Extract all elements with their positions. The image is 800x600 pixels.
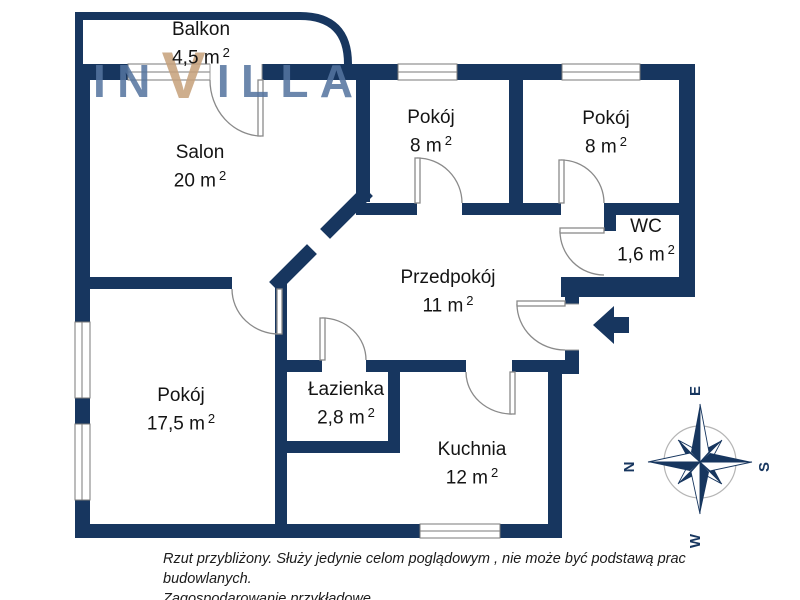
room-label-wc: WC 1,6 m2 xyxy=(617,214,675,268)
window-room3-lower xyxy=(75,424,90,500)
door-entrance xyxy=(517,301,565,350)
wall-kitchen-right xyxy=(548,360,562,538)
wall-salon-room3 xyxy=(75,277,232,289)
wall-wc-left xyxy=(604,215,616,231)
room-label-balkon: Balkon 4,5 m2 xyxy=(172,17,230,71)
compass-cardinal-points xyxy=(648,404,752,514)
window-room3-upper xyxy=(75,322,90,398)
disclaimer-line-1: Rzut przybliżony. Służy jedynie celom po… xyxy=(163,549,763,589)
wall-bath-bottom xyxy=(275,441,400,453)
room-name: Łazienka xyxy=(308,377,384,403)
room-name: Salon xyxy=(174,140,226,166)
room-name: Pokój xyxy=(582,106,630,132)
window-kitchen xyxy=(420,524,500,538)
wall-room2-hall xyxy=(523,203,561,215)
wall-diagonal-lower xyxy=(279,254,307,282)
door-room1 xyxy=(415,158,462,203)
room-name: Kuchnia xyxy=(438,437,507,463)
wall-right-upper xyxy=(679,64,695,297)
door-wc xyxy=(560,228,604,275)
compass-label-e: E xyxy=(687,386,704,396)
room-label-przedpokoj: Przedpokój 11 m2 xyxy=(400,265,495,319)
wall-wc-bottom xyxy=(561,277,695,297)
compass-rose-icon: E N S W xyxy=(621,386,773,548)
logo-letter: L xyxy=(241,54,269,108)
disclaimer-line-2: Zagospodarowanie przykładowe. xyxy=(163,589,763,600)
compass-label-n: N xyxy=(621,462,638,473)
entrance-arrow-icon xyxy=(593,306,629,344)
compass-label-w: W xyxy=(687,533,704,548)
wall-kitchen-top-b xyxy=(512,360,548,372)
door-bathroom xyxy=(320,318,366,360)
compass-label-s: S xyxy=(756,462,773,472)
room-label-lazienka: Łazienka 2,8 m2 xyxy=(308,377,384,431)
room-name: Balkon xyxy=(172,17,230,43)
door-room3 xyxy=(232,289,282,334)
room-label-pokoj-3: Pokój 17,5 m2 xyxy=(147,383,215,437)
door-kitchen xyxy=(466,372,515,414)
window-room2 xyxy=(562,64,640,80)
room-name: Przedpokój xyxy=(400,265,495,291)
door-room2 xyxy=(559,160,604,203)
disclaimer-text: Rzut przybliżony. Służy jedynie celom po… xyxy=(163,549,763,600)
logo-letter: I xyxy=(93,54,106,108)
wall-wc-top xyxy=(604,203,679,215)
room-label-kuchnia: Kuchnia 12 m2 xyxy=(438,437,507,491)
wall-room1-hall-b xyxy=(462,203,509,215)
wall-room1-hall-a xyxy=(356,203,417,215)
room-name: Pokój xyxy=(147,383,215,409)
floorplan-canvas: E N S W I N V I L L A Balkon 4,5 m2 Salo… xyxy=(0,0,800,600)
wall-entry-top-jamb xyxy=(565,288,579,304)
logo-letter: A xyxy=(320,54,353,108)
wall-bath-top-a xyxy=(287,360,322,372)
logo-letter: N xyxy=(117,54,150,108)
wall-room1-room2 xyxy=(509,80,523,215)
wall-salon-room1 xyxy=(356,80,370,202)
wall-bath-right xyxy=(388,360,400,453)
room-label-pokoj-1: Pokój 8 m2 xyxy=(407,105,455,159)
room-name: WC xyxy=(617,214,675,240)
room-name: Pokój xyxy=(407,105,455,131)
wall-kitchen-top-a xyxy=(400,360,466,372)
window-room1 xyxy=(398,64,457,80)
logo-letter: L xyxy=(280,54,308,108)
room-label-pokoj-2: Pokój 8 m2 xyxy=(582,106,630,160)
room-label-salon: Salon 20 m2 xyxy=(174,140,226,194)
